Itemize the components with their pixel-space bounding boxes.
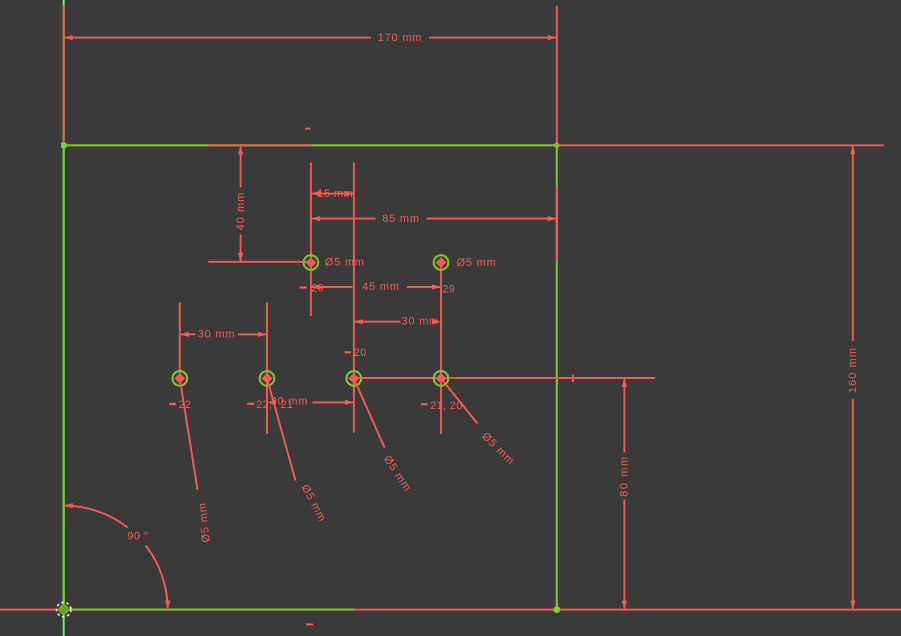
svg-text:29: 29	[442, 283, 455, 295]
svg-text:80 mm: 80 mm	[618, 455, 630, 497]
svg-text:170 mm: 170 mm	[378, 32, 423, 44]
svg-text:30 mm: 30 mm	[198, 329, 236, 341]
svg-text:Ø5 mm: Ø5 mm	[457, 257, 497, 269]
svg-text:90 °: 90 °	[127, 531, 148, 543]
svg-text:22,: 22,	[256, 399, 272, 411]
svg-text:160 mm: 160 mm	[847, 347, 859, 393]
svg-text:40 mm: 40 mm	[235, 192, 247, 231]
svg-text:85 mm: 85 mm	[382, 213, 420, 225]
svg-text:21, 20: 21, 20	[430, 400, 462, 412]
svg-text:29: 29	[311, 282, 324, 294]
svg-text:20: 20	[354, 347, 367, 359]
svg-text:45 mm: 45 mm	[362, 281, 400, 293]
svg-text:30 mm: 30 mm	[402, 316, 440, 328]
svg-text:15 mm: 15 mm	[318, 188, 354, 200]
svg-text:21: 21	[281, 399, 294, 411]
svg-text:Ø5 mm: Ø5 mm	[325, 257, 365, 269]
